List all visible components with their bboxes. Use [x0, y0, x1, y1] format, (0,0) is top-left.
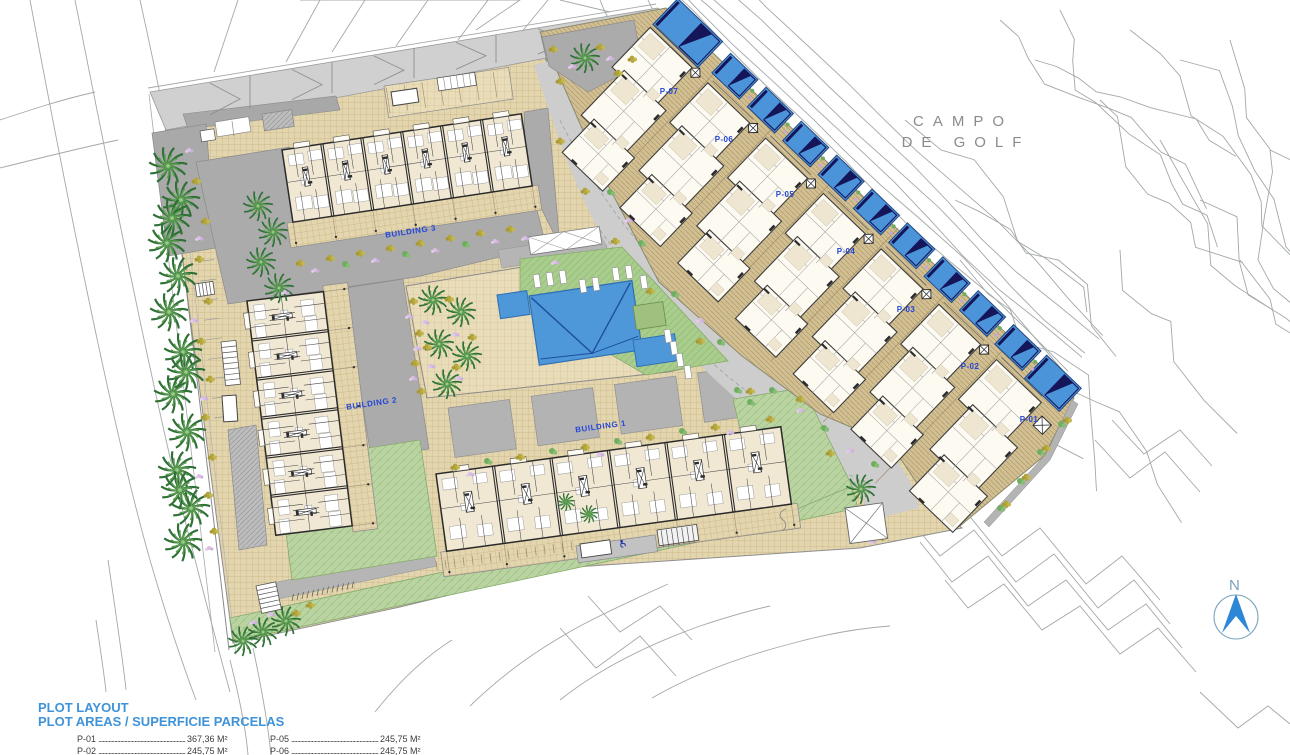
svg-text:P-06: P-06 [270, 746, 289, 755]
svg-text:..............................: ........................................… [291, 746, 379, 755]
svg-text:CAMPO: CAMPO [913, 113, 1013, 130]
svg-text:P-05: P-05 [776, 190, 795, 199]
svg-text:P-01: P-01 [77, 734, 96, 744]
svg-text:PLOT AREAS / SUPERFICIE PARCEL: PLOT AREAS / SUPERFICIE PARCELAS [38, 714, 285, 729]
svg-text:P-01: P-01 [1020, 415, 1039, 424]
svg-text:..............................: ........................................… [291, 734, 379, 744]
svg-text:P-04: P-04 [837, 247, 856, 256]
svg-text:P-02: P-02 [961, 362, 980, 371]
svg-text:PLOT LAYOUT: PLOT LAYOUT [38, 700, 129, 715]
svg-text:P-07: P-07 [660, 87, 679, 96]
svg-text:245,75 M²: 245,75 M² [380, 746, 421, 755]
svg-text:367,36 M²: 367,36 M² [187, 734, 228, 744]
svg-text:P-03: P-03 [897, 305, 916, 314]
svg-text:P-05: P-05 [270, 734, 289, 744]
svg-text:245,75 M²: 245,75 M² [187, 746, 228, 755]
svg-text:..............................: ........................................… [98, 746, 186, 755]
svg-text:N: N [1229, 577, 1240, 594]
svg-text:P-06: P-06 [715, 135, 734, 144]
svg-text:245,75 M²: 245,75 M² [380, 734, 421, 744]
svg-text:P-02: P-02 [77, 746, 96, 755]
svg-text:DE GOLF: DE GOLF [902, 134, 1031, 151]
svg-text:..............................: ........................................… [98, 734, 186, 744]
